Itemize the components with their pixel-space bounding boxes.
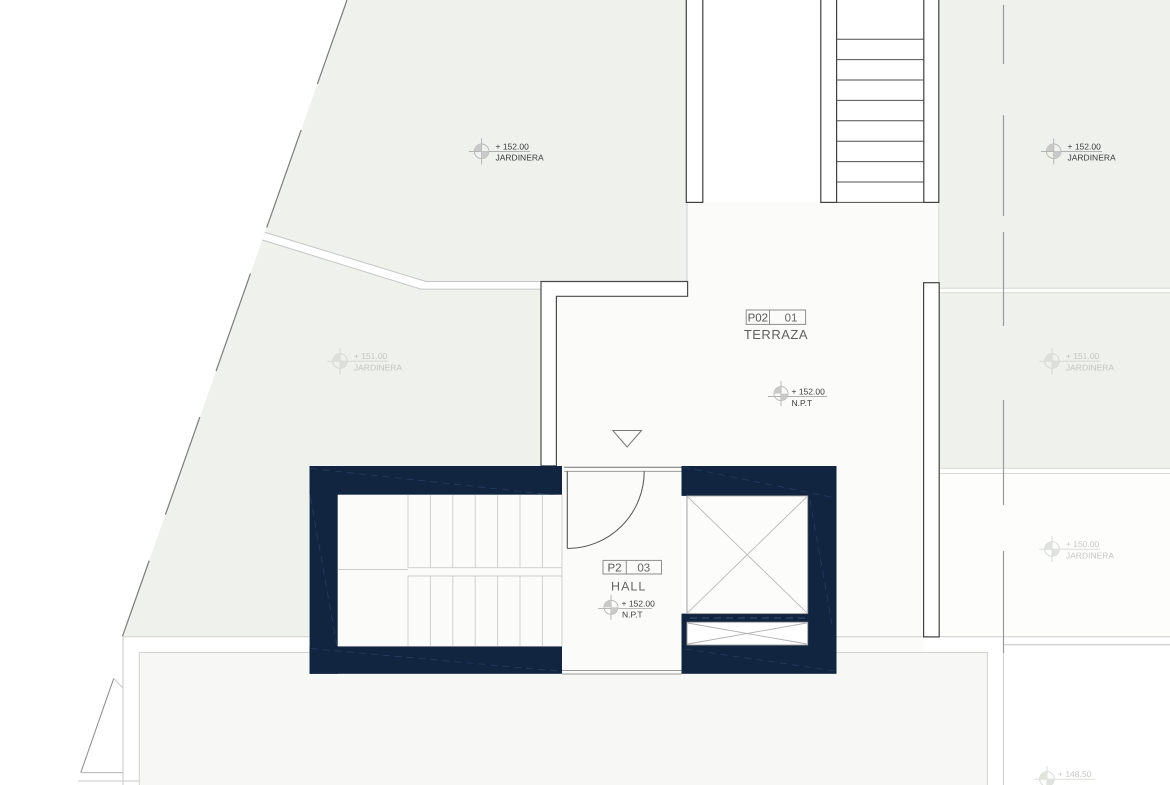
- svg-text:01: 01: [785, 312, 798, 324]
- svg-text:+ 152.00: + 152.00: [792, 387, 826, 397]
- svg-text:HALL: HALL: [611, 580, 646, 594]
- svg-text:JARDINERA: JARDINERA: [1066, 550, 1115, 560]
- svg-text:JARDINERA: JARDINERA: [496, 153, 545, 163]
- svg-text:+ 151.00: + 151.00: [1066, 351, 1100, 361]
- svg-text:+ 148.50: + 148.50: [1058, 769, 1092, 779]
- svg-text:N.P.T: N.P.T: [622, 610, 643, 620]
- svg-text:P2: P2: [607, 562, 621, 574]
- svg-text:+ 150.00: + 150.00: [1066, 539, 1100, 549]
- svg-text:JARDINERA: JARDINERA: [354, 362, 403, 372]
- svg-text:N.P.T: N.P.T: [792, 398, 813, 408]
- svg-text:TERRAZA: TERRAZA: [744, 327, 808, 342]
- svg-text:+ 152.00: + 152.00: [622, 598, 656, 608]
- svg-text:JARDINERA: JARDINERA: [1066, 362, 1115, 372]
- svg-text:03: 03: [637, 562, 650, 574]
- svg-text:JARDINERA: JARDINERA: [1068, 153, 1117, 163]
- svg-text:+ 152.00: + 152.00: [496, 141, 530, 151]
- svg-text:+ 152.00: + 152.00: [1068, 141, 1102, 151]
- svg-text:+ 151.00: + 151.00: [354, 351, 388, 361]
- svg-text:P02: P02: [748, 312, 768, 324]
